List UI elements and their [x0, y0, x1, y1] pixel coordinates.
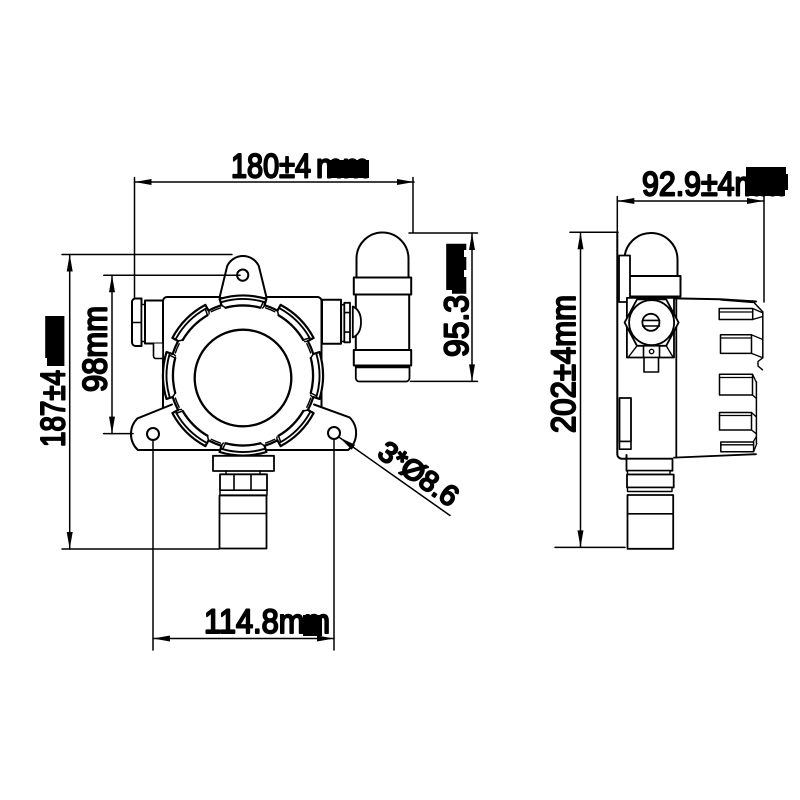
svg-text:98mm: 98mm — [76, 306, 114, 392]
svg-text:180±4: 180±4 — [231, 148, 311, 186]
svg-text:187±4: 187±4 — [34, 370, 72, 447]
svg-text:95.3: 95.3 — [438, 295, 476, 357]
svg-text:202±4mm: 202±4mm — [545, 295, 583, 433]
